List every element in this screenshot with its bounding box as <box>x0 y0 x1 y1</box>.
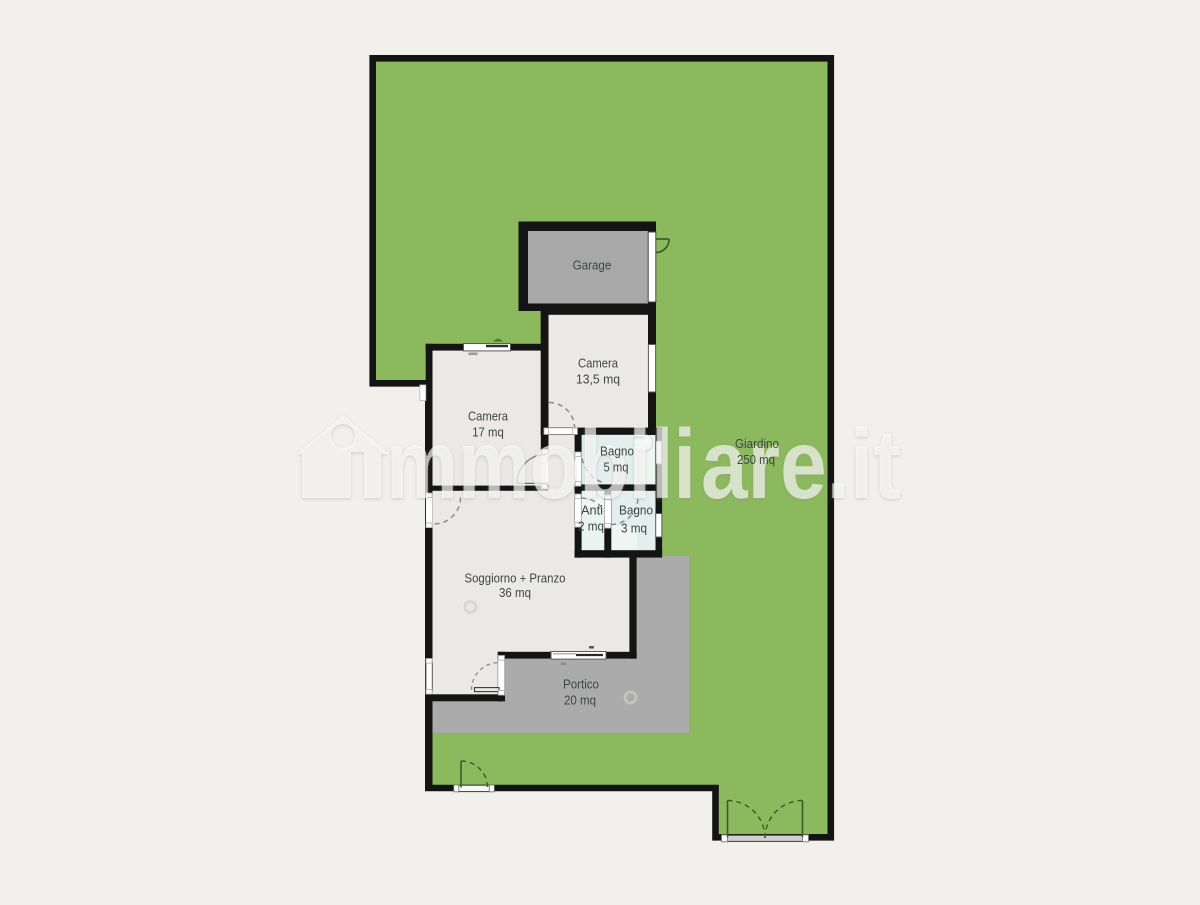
svg-text:Portico: Portico <box>563 677 599 692</box>
svg-text:Camera: Camera <box>578 356 619 371</box>
svg-text:13,5 mq: 13,5 mq <box>576 372 620 387</box>
svg-text:Giardino: Giardino <box>735 436 779 451</box>
svg-text:Bagno: Bagno <box>619 503 653 518</box>
svg-text:20 mq: 20 mq <box>564 693 596 708</box>
svg-text:Soggiorno + Pranzo: Soggiorno + Pranzo <box>465 571 566 586</box>
svg-text:Garage: Garage <box>573 258 612 273</box>
svg-text:17 mq: 17 mq <box>472 425 504 440</box>
svg-text:Bagno: Bagno <box>600 444 634 459</box>
svg-text:5 mq: 5 mq <box>604 460 629 475</box>
svg-text:Camera: Camera <box>468 409 509 424</box>
svg-text:2 mq: 2 mq <box>578 519 604 534</box>
svg-text:Anti: Anti <box>581 503 603 518</box>
svg-text:250 mq: 250 mq <box>737 452 775 467</box>
svg-text:are.it: are.it <box>701 409 901 519</box>
svg-text:36 mq: 36 mq <box>499 585 531 600</box>
svg-text:3 mq: 3 mq <box>621 521 647 536</box>
